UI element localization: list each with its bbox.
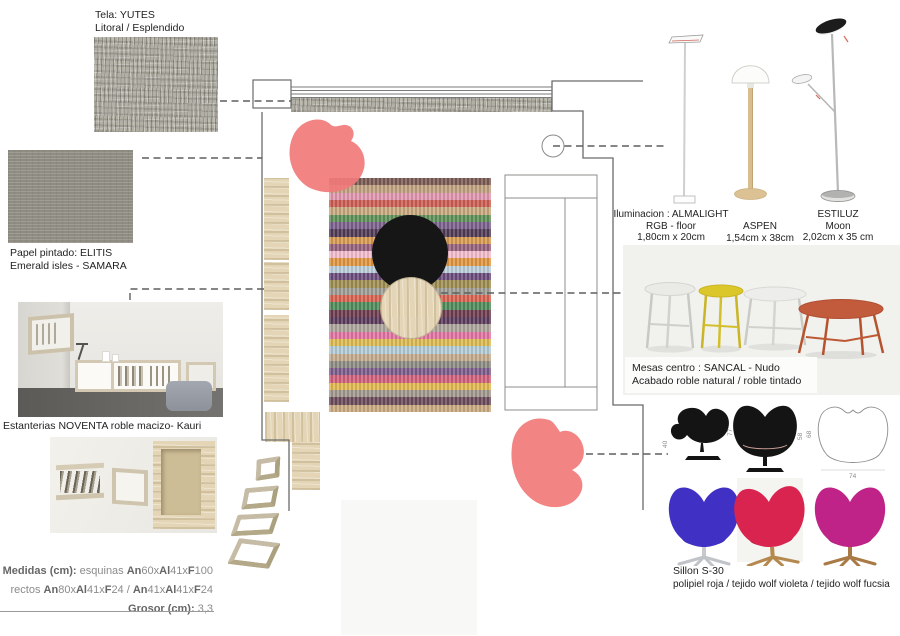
measurements-line1: Medidas (cm): esquinas An60xAl41xF100 — [0, 562, 213, 581]
armchair-top-outline — [818, 407, 888, 470]
wallpaper-swatch — [8, 150, 133, 243]
table-gray-stool — [645, 283, 695, 349]
side-shelf-books — [60, 471, 100, 493]
fabric-label-line1: Tela: YUTES — [95, 9, 184, 22]
side-shelf-bottom — [56, 493, 104, 501]
wood-panel-inner — [161, 449, 201, 515]
plan-shelf-strip-3 — [264, 315, 289, 402]
dim-seat-height: 58 — [797, 432, 804, 440]
desk-lamp-head — [76, 343, 88, 345]
estiluz-lamp — [791, 15, 855, 201]
mood-board: Tela: YUTES Litoral / Esplendido Papel p… — [0, 0, 900, 636]
box-render-4 — [227, 538, 281, 569]
tables-caption: Mesas centro : SANCAL - Nudo Acabado rob… — [632, 362, 801, 388]
shelving-photo — [18, 302, 223, 417]
side-shelf-top — [56, 463, 104, 471]
table-white-wide — [744, 287, 806, 345]
armchair-caption-line2: polipiel roja / tejido wolf violeta / te… — [673, 578, 890, 591]
pouf — [166, 381, 212, 411]
wallpaper-caption-line1: Papel pintado: ELITIS — [10, 247, 127, 260]
lamps-illustration — [610, 0, 900, 205]
plan-corner-shelf-h — [265, 412, 320, 442]
fabric-swatch — [94, 37, 218, 132]
lamp-symbol — [542, 135, 564, 157]
tables-caption-line2: Acabado roble natural / roble tintado — [632, 375, 801, 388]
plan-table-wood-circle — [380, 277, 442, 339]
armchair-front-silhouette — [733, 406, 797, 472]
armchair-photos — [665, 478, 900, 566]
table-terracotta — [799, 300, 883, 356]
vase-2 — [112, 354, 119, 362]
wallpaper-caption-line2: Emerald isles - SAMARA — [10, 260, 127, 273]
measurements-line2: rectos An80xAl41xF24 / An41xAl41xF24 — [0, 581, 213, 600]
fabric-label: Tela: YUTES Litoral / Esplendido — [95, 9, 184, 35]
dim-side-height: 40 — [662, 440, 669, 448]
plan-shelf-strip-1 — [264, 178, 289, 260]
armchair-side-silhouette — [671, 408, 729, 460]
plan-wall-left — [262, 112, 289, 511]
estiluz-caption-line2: Moon — [782, 221, 894, 233]
dim-front-height: 77 — [727, 428, 734, 436]
box-render-1 — [256, 456, 281, 481]
plan-pillar-left — [253, 80, 291, 108]
shelf-books — [118, 366, 146, 386]
chair-violet — [669, 487, 739, 566]
desk-lamp-arm — [78, 344, 84, 360]
armchair-caption-line1: Sillon S-30 — [673, 565, 890, 578]
tables-caption-line1: Mesas centro : SANCAL - Nudo — [632, 362, 801, 375]
dim-top-depth: 68 — [806, 430, 813, 438]
fabric-label-line2: Litoral / Esplendido — [95, 22, 184, 35]
plan-curtain-fabric-band — [291, 98, 552, 112]
measurements-line3: Grosor (cm): 3,3 — [0, 600, 213, 619]
armchair-diagrams: 40 77 58 68 74 — [655, 398, 900, 482]
plan-area-panel — [341, 500, 477, 635]
armchair-plan-symbol-2 — [511, 418, 583, 507]
wallpaper-caption: Papel pintado: ELITIS Emerald isles - SA… — [10, 247, 127, 273]
leader-shelving — [130, 289, 264, 300]
table-yellow — [699, 285, 743, 348]
plan-curtain-track — [291, 87, 552, 98]
estiluz-caption-line3: 2,02cm x 35 cm — [782, 232, 894, 244]
aspen-lamp — [732, 66, 769, 200]
wall-box-shelf — [28, 313, 74, 355]
almalight-caption-line1: Iluminacion : ALMALIGHT — [606, 209, 736, 221]
side-box — [112, 468, 148, 507]
armchair-caption: Sillon S-30 polipiel roja / tejido wolf … — [673, 565, 890, 591]
shelving-photo-2 — [50, 437, 217, 533]
box-render-3 — [230, 513, 279, 537]
measurements-rule — [0, 611, 214, 612]
box-render-2 — [241, 485, 279, 509]
plan-shelf-strip-2 — [264, 262, 289, 310]
shelving-caption: Estanterias NOVENTA roble macizo- Kauri — [3, 420, 201, 433]
almalight-lamp — [669, 35, 703, 203]
estiluz-caption-line1: ESTILUZ — [782, 209, 894, 221]
plan-corner-shelf-v — [292, 442, 320, 490]
plan-wardrobe — [505, 175, 597, 410]
side-shelf — [56, 464, 104, 500]
vase — [102, 351, 110, 362]
wood-panel — [153, 441, 215, 529]
chair-fuchsia — [815, 487, 885, 566]
estiluz-caption: ESTILUZ Moon 2,02cm x 35 cm — [782, 209, 894, 244]
shelf-divider — [111, 363, 114, 389]
